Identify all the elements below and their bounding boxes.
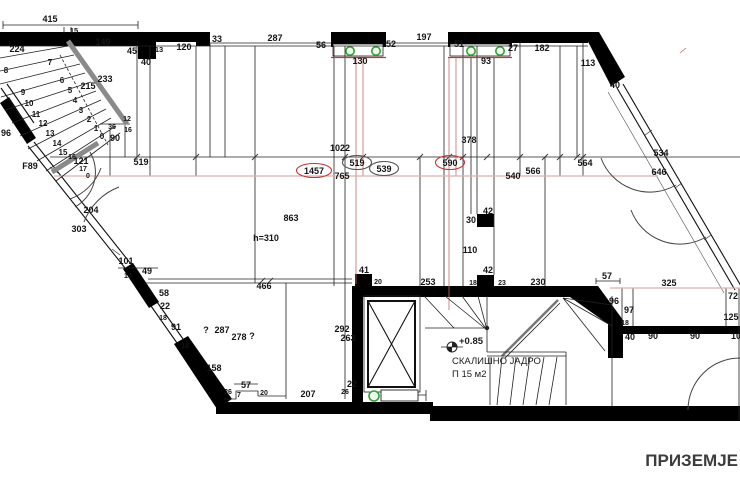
dim-label: 10	[731, 331, 740, 341]
dim-label: 12	[123, 116, 131, 123]
dim-label: 20	[374, 279, 382, 286]
dim-label: 27	[508, 43, 518, 53]
dim-label: 564	[577, 158, 592, 168]
dim-label: 224	[9, 44, 24, 54]
dim-label: 57	[602, 271, 612, 281]
dim-label: 93	[481, 56, 491, 66]
column-icon	[369, 391, 379, 401]
dim-label: 120	[176, 42, 191, 52]
dim-label: 56	[316, 40, 326, 50]
dim-label: 40	[141, 57, 151, 67]
dim-label: F89	[22, 161, 38, 171]
dim-label: 13	[46, 129, 55, 138]
dim-label: 42	[483, 206, 493, 216]
dim-label: 97	[624, 305, 634, 315]
dim-label: 17	[79, 166, 87, 173]
dim-label: 253	[420, 277, 435, 287]
dim-label: 263	[340, 333, 355, 343]
dim-label: 52	[386, 39, 396, 49]
core-area-label: П 15 м2	[452, 369, 487, 380]
dim-label: 10	[25, 99, 34, 108]
dim-label: 519	[133, 157, 148, 167]
dim-label: 1	[94, 124, 99, 133]
dim-label: 22	[347, 379, 357, 389]
floor-plan-page: +0.85 СКАЛИШНО ЈАДРО П 15 м2 41515224149…	[0, 0, 740, 480]
dim-label: 51	[454, 39, 464, 49]
dim-label: 58	[159, 288, 169, 298]
dim-label: 13	[155, 45, 163, 54]
dim-label: 91	[171, 322, 181, 332]
dim-label: 3	[79, 106, 84, 115]
dim-label: 2	[87, 115, 92, 124]
dim-label: 45	[127, 46, 137, 56]
dim-label: 5	[68, 86, 73, 95]
dim-label: 1022	[330, 143, 350, 153]
dim-label: 42	[483, 265, 493, 275]
dim-label: 765	[334, 171, 349, 181]
dim-label: 14	[53, 139, 62, 148]
column-icon	[496, 47, 504, 55]
elevator-x-icon	[368, 301, 415, 387]
dim-label: 278	[231, 332, 246, 342]
dim-label: 18	[469, 280, 477, 287]
dim-label: 182	[534, 43, 549, 53]
dim-label: 12	[39, 119, 48, 128]
dim-label: 534	[653, 148, 668, 158]
dim-label: 233	[97, 74, 112, 84]
dim-label: 72	[728, 291, 738, 301]
dim-label: 15	[70, 26, 78, 35]
dim-label: 204	[83, 205, 98, 215]
dim-label: 15	[59, 148, 68, 157]
dim-label: 197	[416, 32, 431, 42]
dim-label: 40	[625, 332, 635, 342]
dim-label: 7	[237, 392, 241, 399]
dim-label: ?	[203, 325, 209, 335]
floor-plan-canvas: +0.85 СКАЛИШНО ЈАДРО П 15 м2 41515224149…	[0, 0, 740, 480]
dim-label: 18	[159, 315, 167, 322]
dim-label: 540	[505, 171, 520, 181]
dim-label: ?	[249, 331, 255, 341]
dim-label: 590	[442, 158, 457, 168]
dim-label: 13	[124, 271, 132, 280]
column-icon	[346, 47, 354, 55]
door-arc-bottom-right	[688, 358, 740, 410]
dim-label: 57	[241, 380, 251, 390]
dim-label: 149	[95, 37, 110, 47]
dim-label: 0	[100, 132, 105, 141]
dim-label: 18	[181, 343, 189, 350]
core-level-label: +0.85	[459, 336, 484, 347]
dim-label: 90	[110, 133, 120, 143]
column-icon	[467, 47, 475, 55]
dim-label: 466	[256, 281, 271, 291]
dim-label: 125	[723, 312, 738, 322]
dim-label: 18	[621, 320, 629, 327]
stairs-top-left	[0, 41, 127, 181]
dim-label: 30	[466, 215, 476, 225]
door-arc-right-lower	[631, 210, 706, 244]
dim-label: 6	[60, 76, 65, 85]
dim-label: 215	[80, 81, 95, 91]
dim-label: 110	[463, 245, 478, 255]
dim-label: 23	[498, 280, 506, 287]
dim-label: 646	[651, 167, 666, 177]
dim-label: 378	[461, 135, 476, 145]
dim-label: 36	[108, 124, 116, 131]
dim-label: 26	[224, 389, 232, 396]
dim-label: 566	[525, 166, 540, 176]
dim-label: 16	[68, 154, 76, 161]
dim-label: 207	[300, 389, 315, 399]
walls-layer	[0, 32, 740, 421]
plan-title: ПРИЗЕМЈЕ	[645, 451, 738, 470]
dim-labels-layer: 4151522414945134012033287561305219751932…	[1, 14, 740, 399]
dim-label: 96	[1, 128, 11, 138]
dim-label: 101	[118, 256, 133, 266]
dim-label: 158	[206, 363, 221, 373]
dim-label: 16	[124, 127, 132, 134]
dim-label: 49	[142, 266, 152, 276]
dim-label: 11	[32, 110, 41, 119]
dim-label: 230	[530, 277, 545, 287]
dim-label: 539	[376, 164, 391, 174]
dim-label: 1457	[304, 166, 324, 176]
dim-label: 40	[610, 80, 620, 90]
column-icon	[372, 47, 380, 55]
dim-label: 22	[160, 301, 170, 311]
reference-lines-red	[54, 48, 740, 310]
dim-label: h=310	[253, 233, 279, 243]
dim-label: 4	[73, 96, 78, 105]
dim-label: 287	[214, 325, 229, 335]
door-arcs	[70, 152, 740, 410]
dim-label: 20	[260, 390, 268, 397]
dim-label: 519	[349, 158, 364, 168]
level-marker: +0.85 СКАЛИШНО ЈАДРО П 15 м2	[441, 336, 541, 380]
dim-label: 90	[648, 331, 658, 341]
dim-label: 113	[581, 58, 596, 68]
dim-label: 325	[661, 278, 676, 288]
dim-label: 90	[690, 331, 700, 341]
dim-label: 33	[212, 34, 222, 44]
dim-label: 303	[71, 224, 86, 234]
dim-label: 9	[21, 88, 26, 97]
dim-label: 415	[42, 14, 57, 24]
dim-label: 8	[4, 66, 9, 75]
dim-label: 26	[341, 389, 349, 396]
dim-label: 0	[86, 173, 90, 180]
dim-label: 863	[283, 213, 298, 223]
dim-label: 287	[267, 33, 282, 43]
dim-label: 130	[352, 56, 367, 66]
elevator-shaft	[364, 296, 426, 401]
dim-label: 41	[359, 265, 369, 275]
dim-label: 96	[609, 296, 619, 306]
core-name-label: СКАЛИШНО ЈАДРО	[452, 356, 541, 367]
dim-label: 7	[48, 58, 53, 67]
